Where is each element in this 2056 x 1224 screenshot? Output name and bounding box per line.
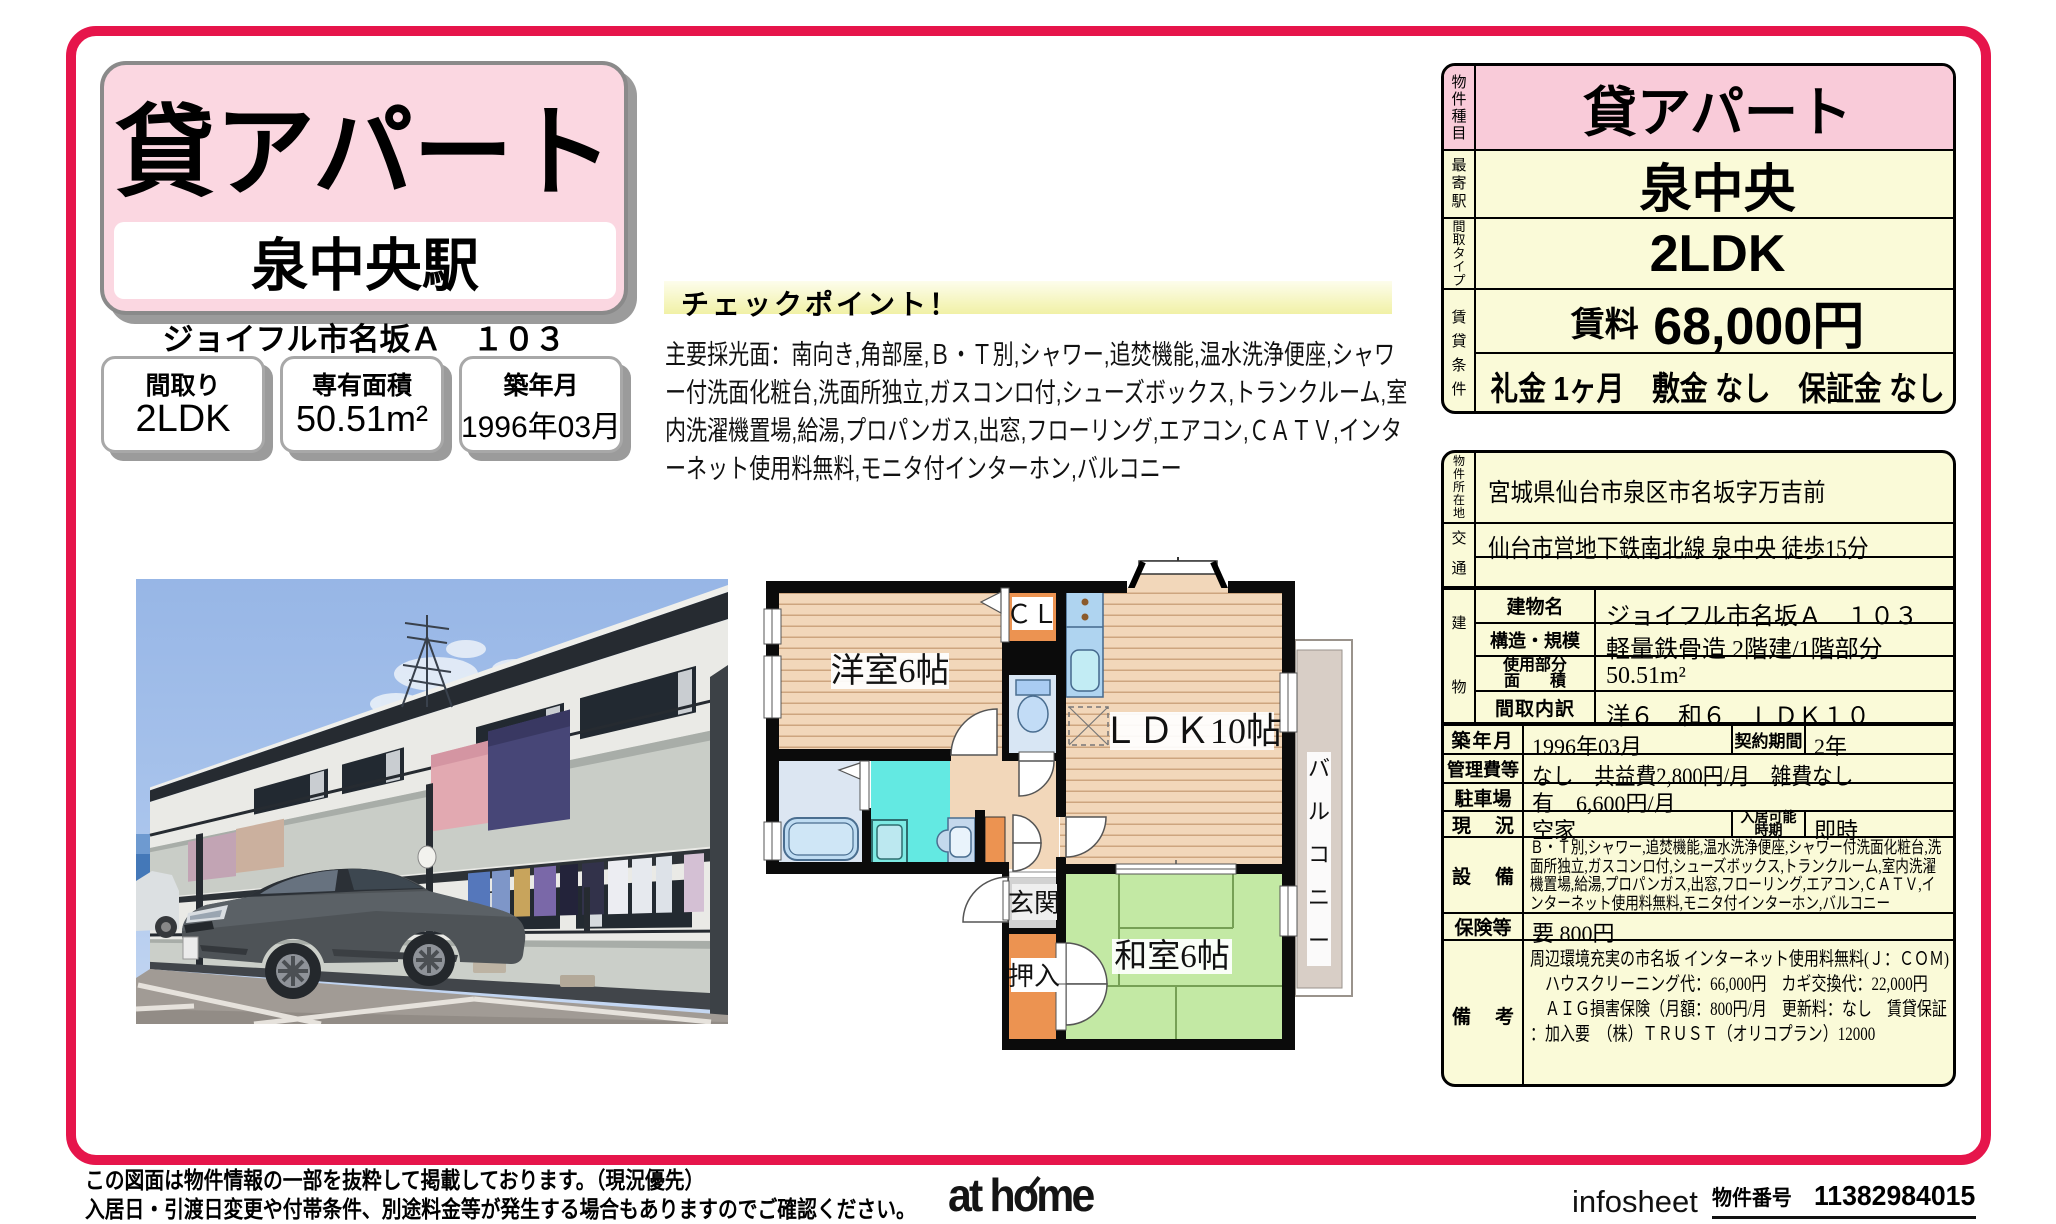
- svg-text:ＬＤＫ10帖: ＬＤＫ10帖: [1102, 711, 1282, 751]
- svg-text:ニ: ニ: [1308, 885, 1330, 910]
- svg-text:洋室6帖: 洋室6帖: [831, 652, 950, 690]
- svg-text:玄関: 玄関: [1008, 889, 1060, 918]
- svg-text:ー: ー: [1308, 928, 1330, 953]
- svg-text:ＣＬ: ＣＬ: [1006, 600, 1058, 629]
- svg-text:ル: ル: [1308, 799, 1330, 824]
- svg-text:コ: コ: [1308, 842, 1330, 867]
- svg-text:押入: 押入: [1008, 962, 1060, 991]
- svg-text:バ: バ: [1308, 756, 1330, 781]
- svg-text:和室6帖: 和室6帖: [1114, 938, 1230, 975]
